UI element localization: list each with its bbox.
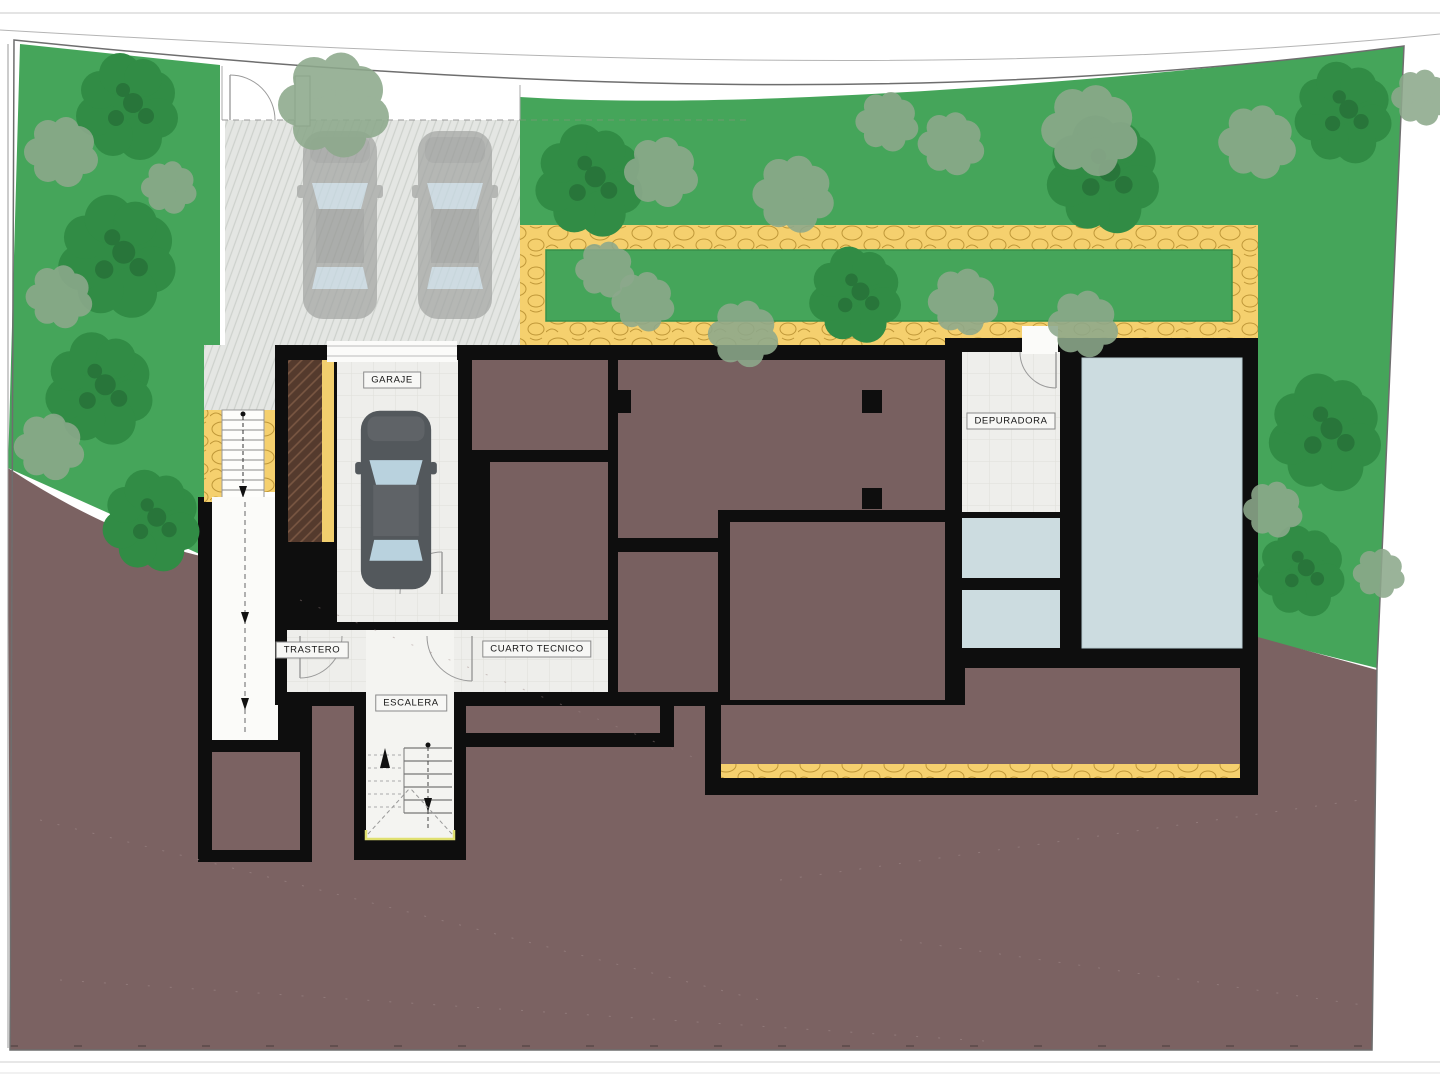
room-label-depuradora: DEPURADORA	[966, 413, 1055, 430]
water-room-2	[962, 590, 1060, 648]
car-icon	[412, 131, 498, 319]
room-label-trastero: TRASTERO	[276, 642, 349, 659]
depuradora-floor	[962, 352, 1060, 512]
pool	[1082, 358, 1242, 648]
room-label-escalera: ESCALERA	[375, 695, 447, 712]
car-icon	[297, 131, 383, 319]
car-icon	[355, 411, 437, 590]
escalera-floor	[366, 630, 454, 838]
pillar	[862, 488, 882, 509]
room-label-garaje: GARAJE	[363, 372, 421, 389]
pillar	[862, 390, 882, 413]
site-plan: GARAJE DEPURADORA TRASTERO CUARTO TECNIC…	[0, 0, 1440, 1080]
pillar	[613, 390, 631, 413]
water-room-1	[962, 518, 1060, 578]
wall-section-strip	[288, 360, 322, 542]
site-plan-drawing	[0, 0, 1440, 1080]
room-label-cuarto-tecnico: CUARTO TECNICO	[482, 641, 591, 658]
garage-door-opening	[327, 341, 457, 362]
exterior-stairs-icon	[222, 410, 264, 502]
